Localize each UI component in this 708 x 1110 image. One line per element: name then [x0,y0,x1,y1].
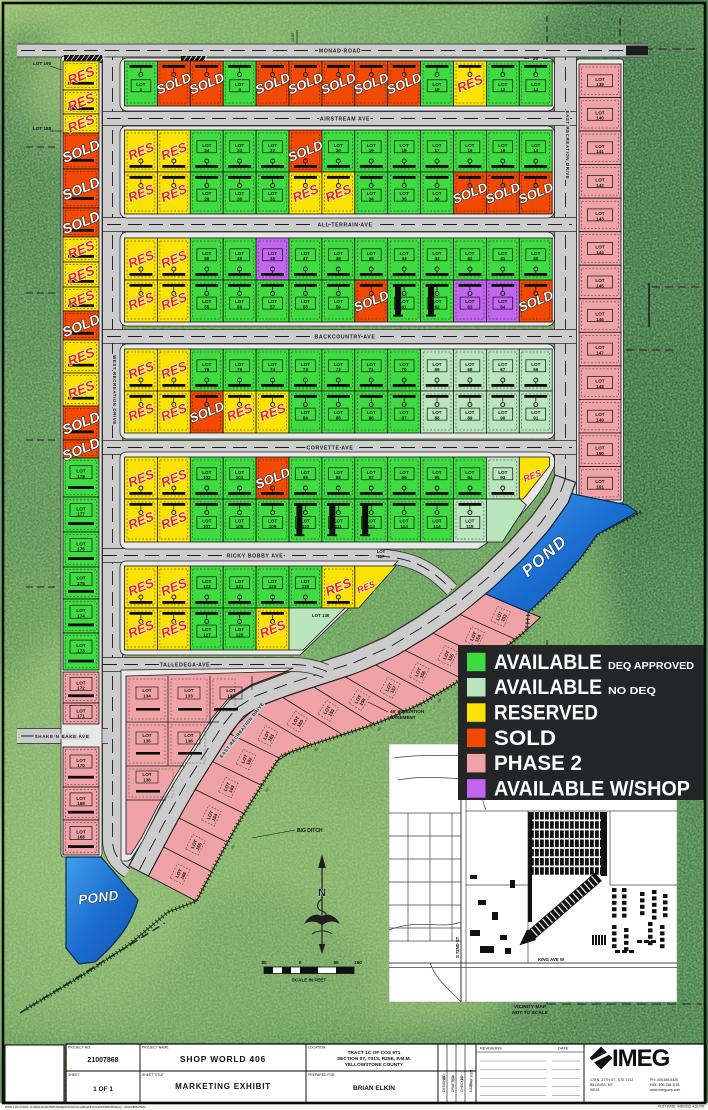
svg-text:LOT132: LOT132 [226,688,235,698]
svg-text:LOT119: LOT119 [301,579,310,589]
svg-text:TRACT 1C OF COS 971: TRACT 1C OF COS 971 [348,1050,401,1056]
svg-text:LOT147: LOT147 [595,345,604,355]
svg-text:LOT 130: LOT 130 [312,613,330,618]
svg-text:10.00': 10.00' [291,32,295,42]
svg-text:LOT109: LOT109 [268,519,277,529]
svg-text:www.imegcorp.com: www.imegcorp.com [650,1088,680,1092]
svg-text:WEST RECREATION DRIVE: WEST RECREATION DRIVE [112,355,117,425]
svg-text:PROJECT NO.: PROJECT NO. [68,1046,91,1050]
svg-text:MARKETING EXHIBIT: MARKETING EXHIBIT [175,1082,271,1091]
svg-text:LOT121: LOT121 [235,579,244,589]
svg-text:SHOP WORLD 406: SHOP WORLD 406 [180,1054,266,1064]
svg-text:LOT 188: LOT 188 [33,126,52,131]
svg-text:BRIAN ELKIN: BRIAN ELKIN [353,1085,395,1092]
svg-text:LOT110: LOT110 [301,519,310,529]
svg-text:BILLINGS, MT: BILLINGS, MT [590,1083,614,1087]
svg-text:LOCATION: LOCATION [308,1046,326,1050]
svg-text:LOT139: LOT139 [595,77,604,87]
svg-text:FAX: 406.256.1191: FAX: 406.256.1191 [650,1083,680,1087]
svg-text:LOT120: LOT120 [268,579,277,589]
svg-text:SHEET TITLE: SHEET TITLE [142,1073,164,1077]
svg-text:SECTION 07, T01S, R25E, P.M.M.: SECTION 07, T01S, R25E, P.M.M. [337,1056,411,1062]
svg-text:LOT135: LOT135 [142,733,151,743]
svg-text:LOT148: LOT148 [595,379,604,389]
svg-text:LOT149: LOT149 [595,412,604,422]
svg-text:BACKCOUNTRY AVE: BACKCOUNTRY AVE [315,335,376,341]
svg-text:LOT122: LOT122 [202,579,211,589]
svg-text:LOT138: LOT138 [142,772,151,782]
svg-text:LOT101: LOT101 [235,470,244,480]
svg-text:59101: 59101 [590,1088,600,1092]
svg-text:DATE: DATE [558,1046,569,1051]
svg-text:LOT136: LOT136 [184,733,193,743]
svg-text:LOT112: LOT112 [367,519,376,529]
svg-text:PROJECT NAME: PROJECT NAME [142,1046,169,1050]
svg-text:PHASE 2: PHASE 2 [494,752,582,775]
svg-text:LOT146: LOT146 [595,312,604,322]
svg-text:BIG DITCH: BIG DITCH [297,828,323,834]
svg-text:LOT115: LOT115 [465,519,474,529]
svg-text:LOT133: LOT133 [184,688,193,698]
svg-text:LOT173: LOT173 [76,643,85,653]
svg-text:LOT102: LOT102 [202,470,211,480]
svg-text:LOT107: LOT107 [202,519,211,529]
svg-text:RICKY BOBBY AVE: RICKY BOBBY AVE [227,554,284,560]
svg-text:LOT114: LOT114 [432,519,441,529]
svg-text:LOT142: LOT142 [595,177,604,187]
svg-text:49' IRRIGATION: 49' IRRIGATION [390,709,425,714]
svg-text:LOT174: LOT174 [76,608,85,618]
svg-text:LOT 190: LOT 190 [33,61,52,66]
svg-text:LOT175: LOT175 [76,576,85,586]
svg-text:NO DEQ: NO DEQ [608,685,656,697]
svg-text:80: 80 [261,960,267,965]
svg-text:LW: LW [452,1075,456,1081]
svg-text:SHAKE N BAKE AVE: SHAKE N BAKE AVE [35,734,90,739]
svg-text:LOT128: LOT128 [235,627,244,637]
svg-text:IMEG: IMEG [612,1045,670,1072]
svg-text:LOT113: LOT113 [400,519,409,529]
svg-text:160: 160 [354,960,362,965]
svg-text:KF: KF [443,1075,447,1080]
svg-text:0: 0 [299,960,302,965]
svg-text:LOT145: LOT145 [595,278,604,288]
svg-text:S 72ND ST: S 72ND ST [455,936,460,958]
svg-text:PH: 406.545.6420: PH: 406.545.6420 [650,1078,678,1082]
svg-text:AVAILABLE W/SHOP: AVAILABLE W/SHOP [494,777,690,800]
svg-text:LOT140: LOT140 [595,110,604,120]
svg-text:LOT134: LOT134 [142,688,151,698]
svg-text:LOT170: LOT170 [76,758,85,768]
svg-text:21007868: 21007868 [87,1057,118,1064]
svg-text:YELLOWSTONE COUNTY: YELLOWSTONE COUNTY [345,1062,404,1068]
svg-text:LOT127: LOT127 [202,627,211,637]
svg-text:MAR 2021: MAR 2021 [470,1070,474,1087]
svg-text:EAST RECREATION DRIVE: EAST RECREATION DRIVE [565,111,570,180]
svg-text:LOT143: LOT143 [595,211,604,221]
svg-text:PLOT DATE: 4/30/2021 4:32 PM: PLOT DATE: 4/30/2021 4:32 PM [658,1105,704,1109]
svg-text:1 OF 1: 1 OF 1 [93,1086,113,1093]
svg-text:LOT150: LOT150 [595,446,604,456]
svg-text:LOT176: LOT176 [76,542,85,552]
svg-text:LOT178: LOT178 [76,469,85,479]
svg-text:DWG LOCATION: G:\2021\21007868: DWG LOCATION: G:\2021\21007868-00\DESIGN… [5,1105,146,1109]
svg-text:KING AVE W: KING AVE W [538,957,565,962]
svg-text:MONAD ROAD: MONAD ROAD [319,49,361,55]
svg-text:LOT108: LOT108 [235,519,244,529]
svg-text:LOT168: LOT168 [76,830,85,840]
svg-text:SHEET.: SHEET. [68,1073,80,1077]
svg-text:AVAILABLE: AVAILABLE [494,676,602,699]
svg-text:N: N [318,887,326,899]
svg-text:TALLEDEGA AVE: TALLEDEGA AVE [160,663,210,669]
svg-text:SOLD: SOLD [494,727,556,750]
svg-text:ALL TERRAIN AVE: ALL TERRAIN AVE [317,223,372,229]
svg-text:SCALE IN FEET: SCALE IN FEET [292,978,327,983]
svg-text:LOT172: LOT172 [76,680,85,690]
svg-text:LOT151: LOT151 [595,479,604,489]
svg-text:EASEMENT: EASEMENT [390,715,416,720]
svg-text:LOT117: LOT117 [377,549,386,559]
svg-text:LOT177: LOT177 [76,507,85,517]
svg-text:RESERVED: RESERVED [494,702,598,725]
svg-text:175 N. 27TH ST., STE 1312: 175 N. 27TH ST., STE 1312 [590,1078,633,1082]
svg-text:DEQ APPROVED: DEQ APPROVED [608,660,694,672]
svg-text:CORVETTE AVE: CORVETTE AVE [307,446,354,452]
svg-text:VICINITY MAP: VICINITY MAP [514,1004,547,1010]
svg-text:LOT141: LOT141 [595,144,604,154]
svg-text:80: 80 [333,960,339,965]
svg-text:NOT TO SCALE: NOT TO SCALE [512,1010,548,1016]
svg-text:LOT144: LOT144 [595,245,604,255]
svg-text:LOT111: LOT111 [334,519,343,529]
svg-text:LOT171: LOT171 [76,708,85,718]
svg-text:28': 28' [533,56,539,61]
svg-text:KF: KF [461,1075,465,1080]
svg-text:LOT169: LOT169 [76,796,85,806]
svg-text:AVAILABLE: AVAILABLE [494,651,602,674]
svg-text:PREPARED FOR:: PREPARED FOR: [308,1073,336,1077]
svg-text:REVISIONS: REVISIONS [480,1046,502,1051]
svg-text:AIRSTREAM AVE: AIRSTREAM AVE [320,117,370,123]
